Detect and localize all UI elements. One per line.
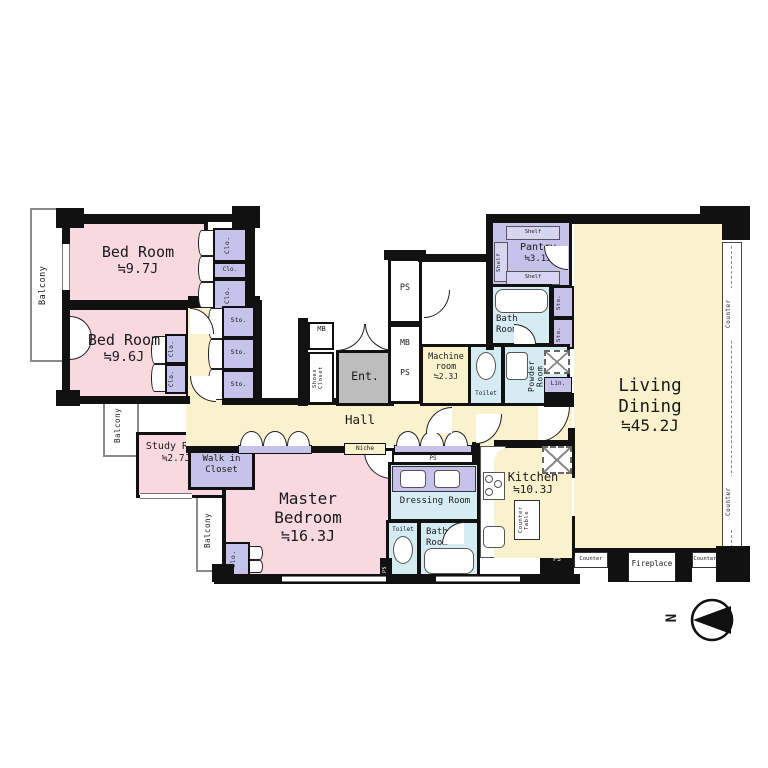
bedroom-2-size: ≒9.6J	[74, 350, 174, 366]
balcony-lower-left-label: Balcony	[204, 495, 212, 565]
bathtub-lower	[424, 548, 474, 574]
closet-3-label: Clo.	[224, 282, 231, 308]
storage-3-label: Sto.	[223, 381, 254, 389]
bedroom-2-label: Bed Room ≒9.6J	[74, 332, 174, 366]
wall	[254, 300, 262, 406]
living-size: ≒45.2J	[604, 417, 696, 436]
pantry-shelf-top-label: Shelf	[506, 229, 560, 235]
pillar	[232, 206, 260, 228]
entrance-label: Ent.	[344, 370, 386, 384]
niche-label: Niche	[344, 445, 386, 452]
pantry-shelf-bottom-label: Shelf	[506, 274, 560, 280]
hall-label: Hall	[330, 413, 390, 428]
storage-1-label: Sto.	[223, 317, 254, 325]
wall	[62, 214, 255, 222]
meter-pipe-shaft	[388, 324, 422, 404]
bedroom-1-size: ≒9.7J	[88, 262, 188, 278]
compass-icon	[688, 596, 736, 644]
pillar	[608, 548, 628, 582]
living-dining-label: Living Dining ≒45.2J	[604, 376, 696, 436]
meter-box-label: MB	[316, 325, 327, 333]
bedroom-1-label: Bed Room ≒9.7J	[88, 244, 188, 278]
toilet-lower-label: Toilet	[386, 526, 420, 533]
wall	[214, 574, 580, 584]
pillar	[544, 393, 574, 407]
wall	[418, 254, 496, 262]
entrance-door-left	[336, 324, 365, 351]
hall-closet-left-doors	[240, 431, 310, 446]
toilet-upper-bowl	[476, 352, 496, 380]
washer-space	[544, 350, 570, 374]
window	[62, 244, 70, 290]
hall-closet-right-doors	[396, 431, 468, 446]
hall-closet-left	[238, 445, 312, 454]
meter-shaft-label: MB	[389, 338, 421, 347]
wall	[62, 396, 190, 404]
fireplace-label: Fireplace	[628, 560, 676, 569]
powder-room-label: Powder Room	[528, 350, 545, 402]
closet-5-label: Clo.	[169, 366, 175, 392]
wall	[310, 446, 346, 453]
master-name: Master Bedroom	[274, 489, 341, 527]
storage-2-label: Sto.	[223, 349, 254, 357]
vanity-sink-left	[400, 470, 426, 488]
machine-name: Machine room	[428, 352, 464, 372]
counter-table-label: Counter Table	[519, 503, 531, 537]
wall	[298, 318, 308, 406]
machine-size: ≒2.3J	[422, 372, 470, 381]
dressing-room-label: Dressing Room	[398, 496, 472, 507]
window	[140, 493, 192, 499]
shoes-closet-label: Shoes Closet	[313, 356, 325, 400]
master-bedroom-label: Master Bedroom ≒16.3J	[256, 490, 360, 545]
pantry-shelf-left-label: Shelf	[497, 246, 503, 278]
balcony-upper-left-label: Balcony	[39, 232, 48, 338]
stove-burner	[494, 480, 502, 488]
balcony-mid-left-label: Balcony	[114, 398, 122, 452]
window	[436, 576, 520, 582]
window	[282, 576, 386, 582]
pipe-shaft-upper-label: PS	[389, 283, 421, 293]
stove-burner	[485, 475, 493, 483]
powder-sink	[506, 352, 528, 380]
kitchen-sink	[483, 526, 505, 548]
hall-closet-right	[394, 445, 472, 453]
alcove-door-swing	[424, 290, 450, 318]
stove-burner	[485, 488, 493, 496]
walk-in-closet-label: Walk in Closet	[193, 454, 250, 475]
toilet-upper-label: Toilet	[468, 390, 504, 397]
kitchen-size: ≒10.3J	[496, 484, 570, 497]
linen-closet-label: Lin.	[544, 380, 572, 387]
machine-room-label: Machine room ≒2.3J	[422, 352, 470, 381]
refrigerator-space	[542, 446, 572, 474]
bedroom-2-name: Bed Room	[74, 332, 174, 350]
pipe-shaft-label: PS	[389, 368, 421, 377]
wall	[62, 214, 70, 402]
storage-living-1-label: Sto.	[557, 289, 563, 315]
toilet-lower-bowl	[393, 536, 413, 564]
living-name: Living Dining	[618, 376, 681, 417]
bathtub-upper	[495, 289, 548, 313]
closet-bifold-doors	[198, 230, 213, 308]
floor-plan: Balcony Balcony Balcony Clo. Clo. Clo. C…	[0, 0, 768, 768]
vanity-sink-right	[434, 470, 460, 488]
counter-right-label-2: Counter	[726, 476, 732, 528]
pillar	[56, 208, 84, 228]
closet-1-label: Clo.	[224, 231, 231, 259]
bedroom-1-name: Bed Room	[88, 244, 188, 262]
counter-right-label-1: Counter	[726, 288, 732, 340]
closet-2-label: Clo.	[214, 266, 246, 273]
kitchen-label: Kitchen ≒10.3J	[496, 470, 570, 497]
compass-north-label: N	[664, 614, 680, 622]
counter-bottom-left-label: Counter	[574, 556, 608, 562]
master-size: ≒16.3J	[256, 528, 360, 546]
master-closet-doors	[250, 546, 263, 573]
pillar	[676, 548, 692, 582]
pillar	[716, 546, 750, 582]
wall	[186, 446, 238, 453]
pillar	[56, 390, 80, 406]
